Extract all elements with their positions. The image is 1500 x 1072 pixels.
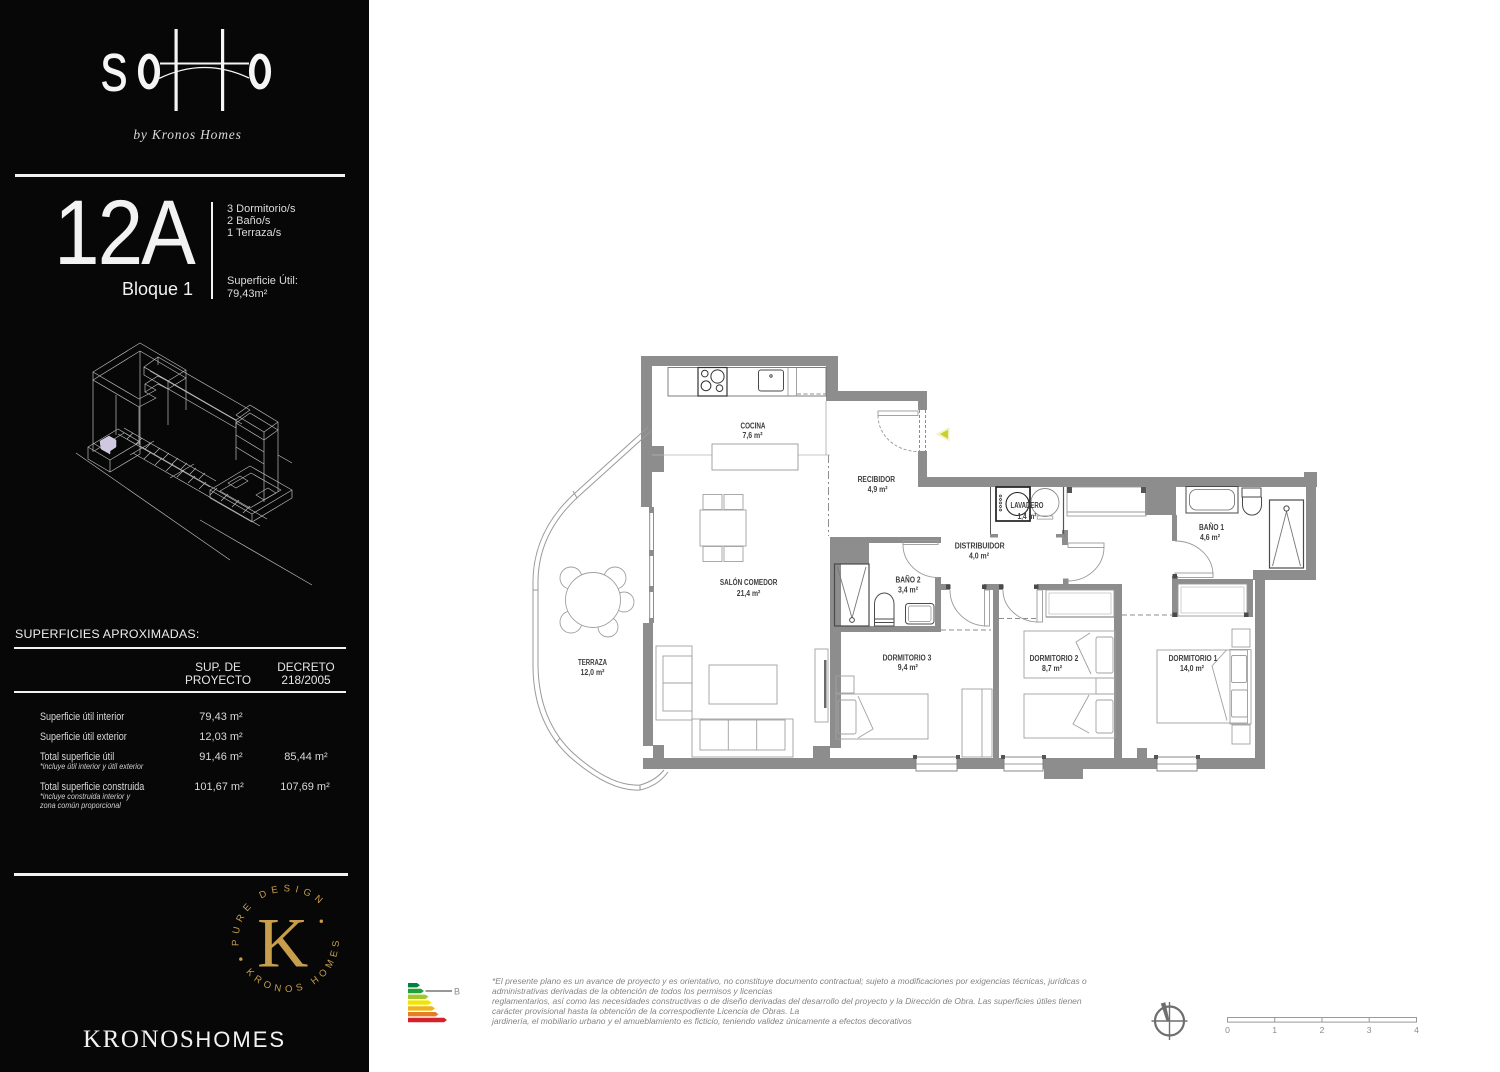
svg-text:4: 4 [1414,1025,1419,1035]
svg-text:BAÑO 2: BAÑO 2 [896,575,921,585]
svg-text:DORMITORIO 1: DORMITORIO 1 [1169,653,1218,663]
svg-text:BAÑO 1: BAÑO 1 [1199,522,1224,532]
svg-text:21,4 m²: 21,4 m² [737,588,761,598]
svg-text:1,4 m²: 1,4 m² [1018,511,1037,521]
svg-text:RECIBIDOR: RECIBIDOR [858,474,896,484]
svg-text:DISTRIBUIDOR: DISTRIBUIDOR [955,541,1006,551]
svg-text:9,4 m²: 9,4 m² [898,662,918,672]
svg-text:DORMITORIO 2: DORMITORIO 2 [1030,653,1079,663]
svg-text:COCINA: COCINA [741,421,767,431]
svg-text:LAVADERO: LAVADERO [1011,500,1044,510]
svg-text:3,4 m²: 3,4 m² [898,585,918,595]
svg-text:7,6 m²: 7,6 m² [743,430,763,440]
svg-text:DORMITORIO 3: DORMITORIO 3 [883,653,932,663]
svg-text:s: s [101,29,128,107]
svg-text:12,0 m²: 12,0 m² [581,667,605,677]
svg-text:0: 0 [1225,1025,1230,1035]
svg-text:TERRAZA: TERRAZA [578,657,607,667]
svg-text:1: 1 [1272,1025,1277,1035]
svg-text:8,7 m²: 8,7 m² [1042,663,1062,673]
svg-text:SALÓN COMEDOR: SALÓN COMEDOR [720,576,778,587]
svg-text:by Kronos Homes: by Kronos Homes [133,127,241,142]
svg-text:2: 2 [1320,1025,1325,1035]
svg-text:4,0 m²: 4,0 m² [969,551,989,561]
svg-text:4,9 m²: 4,9 m² [868,484,888,494]
svg-text:3: 3 [1367,1025,1372,1035]
svg-text:B: B [454,987,460,997]
svg-text:K: K [257,904,308,982]
svg-text:14,0 m²: 14,0 m² [1180,663,1204,673]
svg-text:4,6 m²: 4,6 m² [1200,532,1220,542]
